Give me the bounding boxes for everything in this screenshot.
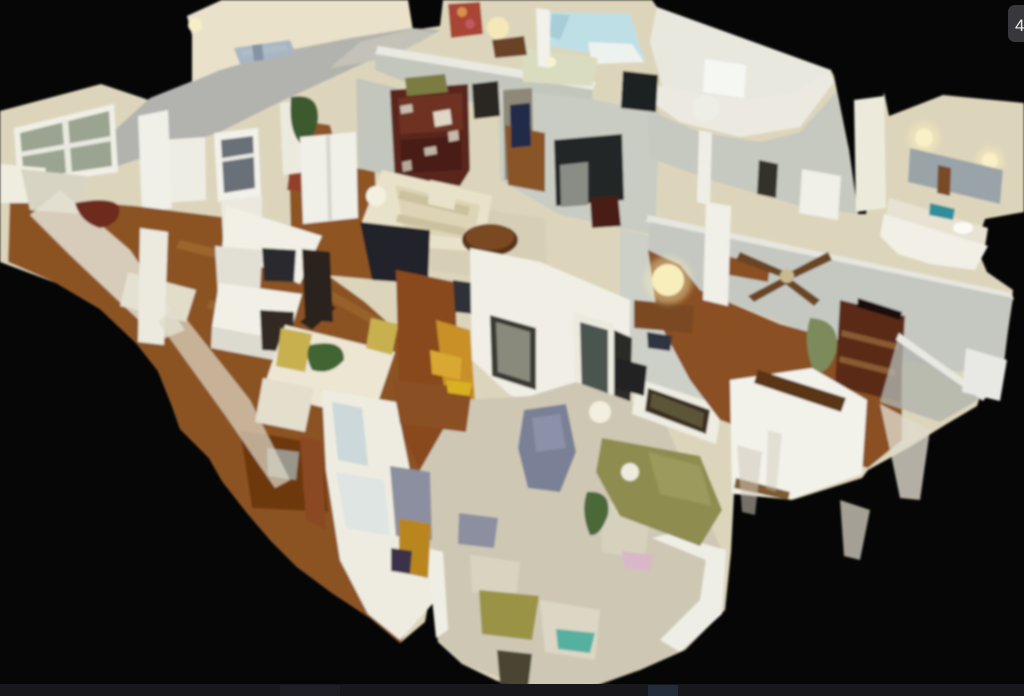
- svg-text:4: 4: [1015, 16, 1024, 35]
